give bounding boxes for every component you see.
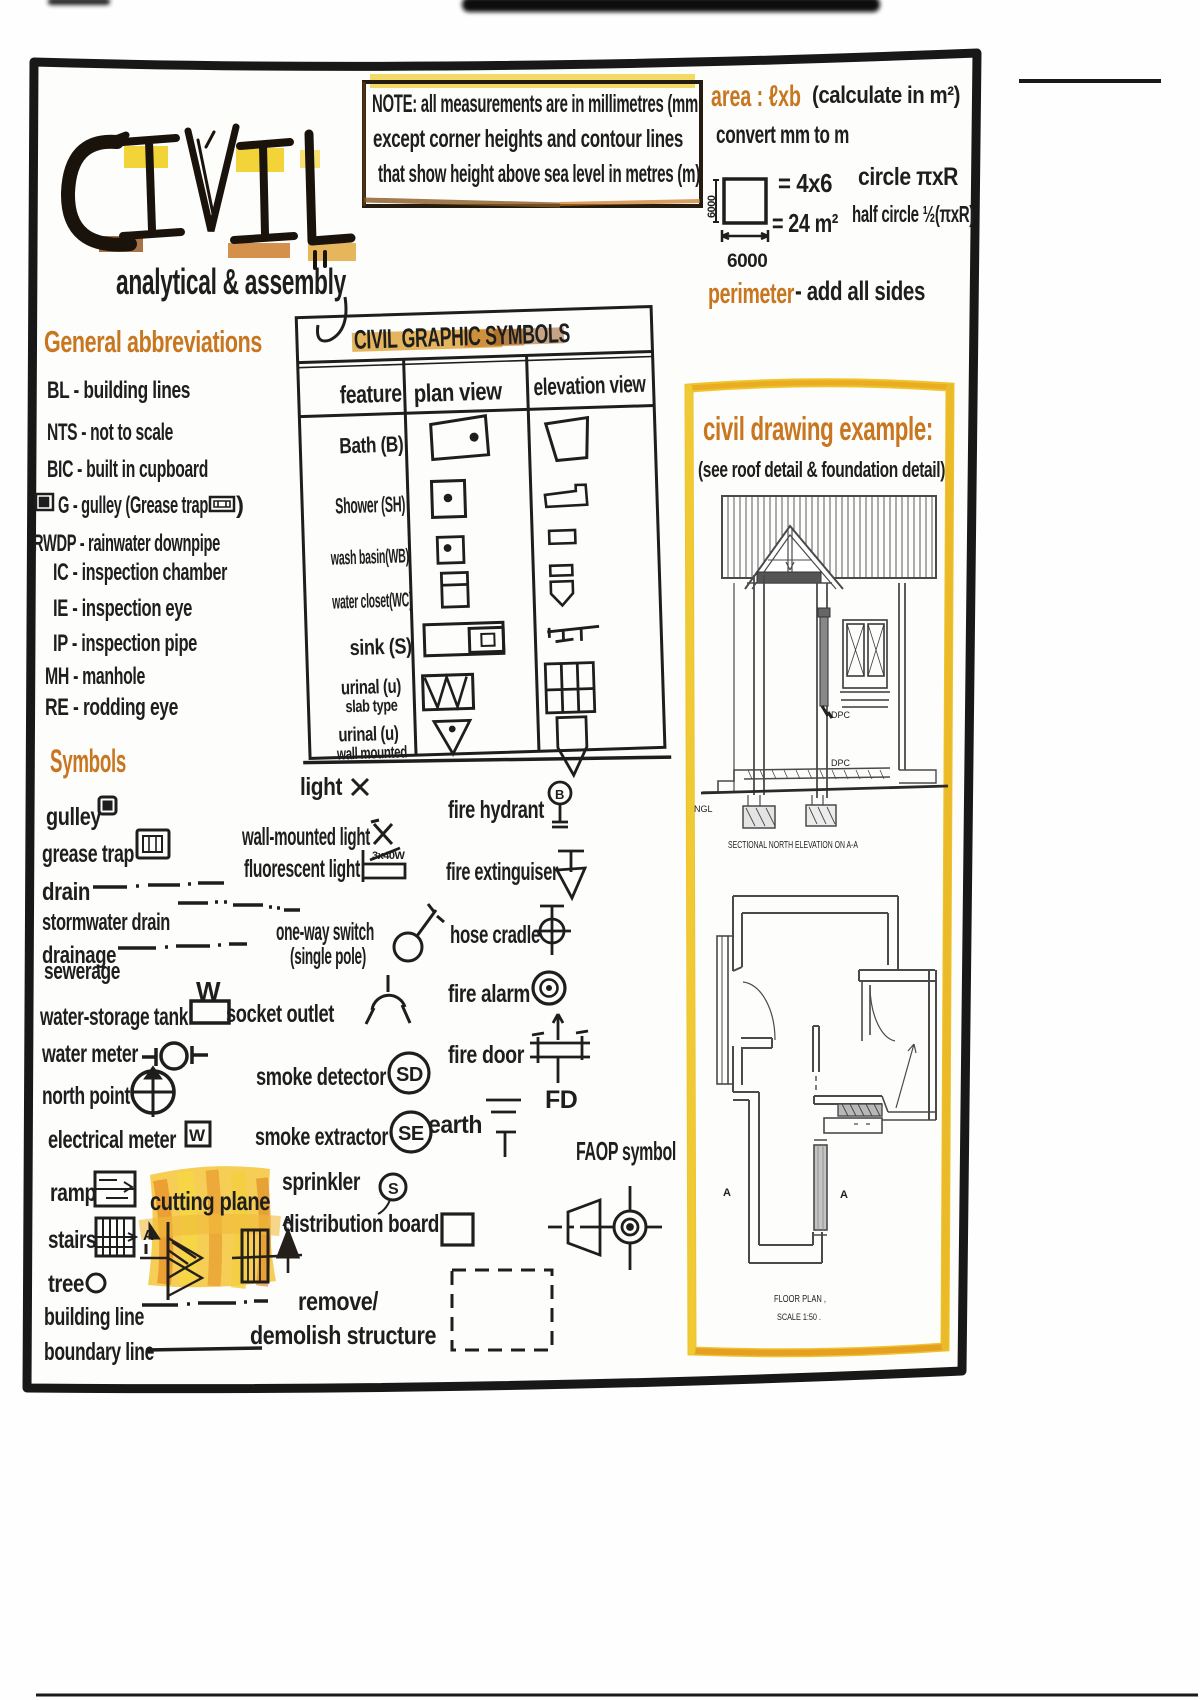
svg-text:distribution board: distribution board	[283, 1210, 439, 1238]
svg-text:A: A	[143, 1227, 154, 1244]
svg-text:(calculate in m²): (calculate in m²)	[812, 82, 960, 109]
svg-text:6000: 6000	[727, 251, 767, 272]
svg-text:except corner heights and cont: except corner heights and contour lines	[373, 125, 683, 153]
svg-text:fire alarm: fire alarm	[448, 980, 530, 1008]
svg-text:fire hydrant: fire hydrant	[448, 796, 545, 824]
svg-text:stairs: stairs	[48, 1226, 96, 1254]
svg-text:Shower (SH): Shower (SH)	[335, 491, 406, 518]
svg-text:G - gulley (Grease trap: G - gulley (Grease trap	[58, 492, 208, 519]
svg-text:(single pole): (single pole)	[290, 943, 366, 969]
svg-text:perimeter: perimeter	[708, 278, 794, 310]
svg-text:Symbols: Symbols	[50, 743, 126, 779]
svg-text:fire door: fire door	[448, 1041, 525, 1069]
svg-text:one-way switch: one-way switch	[276, 918, 374, 946]
svg-text:SE: SE	[398, 1123, 424, 1145]
svg-text:circle πxR: circle πxR	[858, 163, 958, 191]
svg-text:hose cradle: hose cradle	[450, 921, 540, 949]
svg-text:gulley: gulley	[46, 803, 101, 831]
svg-text:IE - inspection eye: IE - inspection eye	[53, 595, 192, 622]
svg-text:stormwater drain: stormwater drain	[42, 909, 170, 936]
svg-text:FLOOR PLAN ,: FLOOR PLAN ,	[774, 1293, 826, 1305]
svg-text:RWDP - rainwater downpipe: RWDP - rainwater downpipe	[33, 530, 220, 557]
svg-text:B: B	[555, 787, 564, 802]
svg-text:plan view: plan view	[413, 377, 503, 408]
svg-text:elevation view: elevation view	[533, 371, 646, 402]
svg-text:sewerage: sewerage	[44, 958, 120, 985]
svg-text:water-storage tank: water-storage tank	[39, 1003, 188, 1031]
svg-text:S: S	[388, 1181, 399, 1198]
svg-text:half circle ½(πxR): half circle ½(πxR)	[852, 201, 974, 227]
svg-text:wall mounted: wall mounted	[336, 742, 407, 763]
svg-text:ramp: ramp	[50, 1179, 96, 1207]
svg-text:smoke detector: smoke detector	[256, 1063, 387, 1091]
svg-text:BIC - built in cupboard: BIC - built in cupboard	[47, 456, 208, 483]
svg-text:Bath (B): Bath (B)	[339, 431, 404, 458]
svg-text:- add all sides: - add all sides	[795, 276, 925, 306]
svg-text:IC - inspection chamber: IC - inspection chamber	[53, 559, 227, 586]
svg-text:= 4x6: = 4x6	[778, 168, 832, 198]
svg-text:IP - inspection pipe: IP - inspection pipe	[53, 630, 197, 657]
svg-text:SCALE 1:50 .: SCALE 1:50 .	[777, 1312, 821, 1323]
svg-text:light: light	[300, 773, 343, 801]
svg-text:grease trap: grease trap	[42, 840, 134, 868]
svg-text:sprinkler: sprinkler	[282, 1168, 361, 1196]
svg-text:fluorescent light: fluorescent light	[244, 855, 361, 883]
svg-text:cutting plane: cutting plane	[150, 1186, 270, 1216]
svg-text:water meter: water meter	[41, 1040, 138, 1068]
svg-text:remove/: remove/	[298, 1286, 378, 1316]
svg-text:smoke extractor: smoke extractor	[255, 1123, 389, 1151]
svg-text:drain: drain	[42, 878, 90, 906]
svg-text:FD: FD	[545, 1086, 577, 1114]
svg-text:wall-mounted light: wall-mounted light	[241, 823, 370, 851]
svg-text:feature: feature	[339, 379, 402, 409]
svg-text:SECTIONAL NORTH ELEVATION ON A: SECTIONAL NORTH ELEVATION ON A-A	[728, 840, 858, 851]
svg-text:sink (S): sink (S)	[349, 633, 412, 660]
svg-text:area : ℓxb: area : ℓxb	[711, 80, 801, 113]
svg-text:A: A	[723, 1187, 731, 1199]
svg-text:that show height above sea lev: that show height above sea level in metr…	[378, 160, 700, 188]
svg-text:6000: 6000	[706, 195, 718, 218]
svg-text:RE - rodding eye: RE - rodding eye	[45, 694, 178, 721]
svg-text:W: W	[189, 1126, 206, 1145]
svg-text:SD: SD	[396, 1064, 423, 1086]
svg-text:civil drawing example:: civil drawing example:	[703, 410, 933, 447]
svg-text:socket outlet: socket outlet	[226, 1000, 335, 1028]
svg-text:wash basin(WB): wash basin(WB)	[330, 545, 409, 569]
svg-text:DPC: DPC	[831, 758, 851, 768]
svg-text:building line: building line	[44, 1303, 144, 1331]
svg-text:): )	[236, 492, 244, 519]
svg-text:= 24 m²: = 24 m²	[772, 208, 839, 238]
svg-text:electrical meter: electrical meter	[48, 1126, 177, 1154]
svg-text:3x40W: 3x40W	[372, 850, 405, 862]
svg-text:BL - building lines: BL - building lines	[47, 377, 190, 404]
svg-text:fire extinguiser: fire extinguiser	[446, 858, 558, 886]
svg-text:tree: tree	[48, 1270, 84, 1298]
svg-text:demolish structure: demolish structure	[250, 1320, 436, 1350]
svg-text:water closet(WC): water closet(WC)	[331, 589, 412, 614]
svg-text:earth: earth	[428, 1111, 482, 1139]
svg-text:convert mm to m: convert mm to m	[716, 121, 849, 149]
svg-text:DPC: DPC	[831, 710, 851, 720]
svg-text:(see roof detail & foundation: (see roof detail & foundation detail)	[698, 457, 945, 482]
svg-text:General abbreviations: General abbreviations	[44, 324, 262, 359]
svg-text:A: A	[840, 1189, 848, 1201]
svg-text:FAOP symbol: FAOP symbol	[576, 1136, 676, 1166]
svg-text:MH - manhole: MH - manhole	[45, 663, 145, 690]
svg-text:boundary line: boundary line	[44, 1338, 154, 1366]
svg-text:NGL: NGL	[694, 804, 713, 814]
svg-text:NTS - not to scale: NTS - not to scale	[47, 419, 173, 446]
svg-text:analytical & assembly: analytical & assembly	[116, 261, 346, 302]
svg-text:slab type: slab type	[345, 696, 398, 717]
svg-text:north point: north point	[42, 1082, 131, 1110]
svg-text:NOTE: all measurements are in: NOTE: all measurements are in millimetre…	[372, 90, 698, 118]
